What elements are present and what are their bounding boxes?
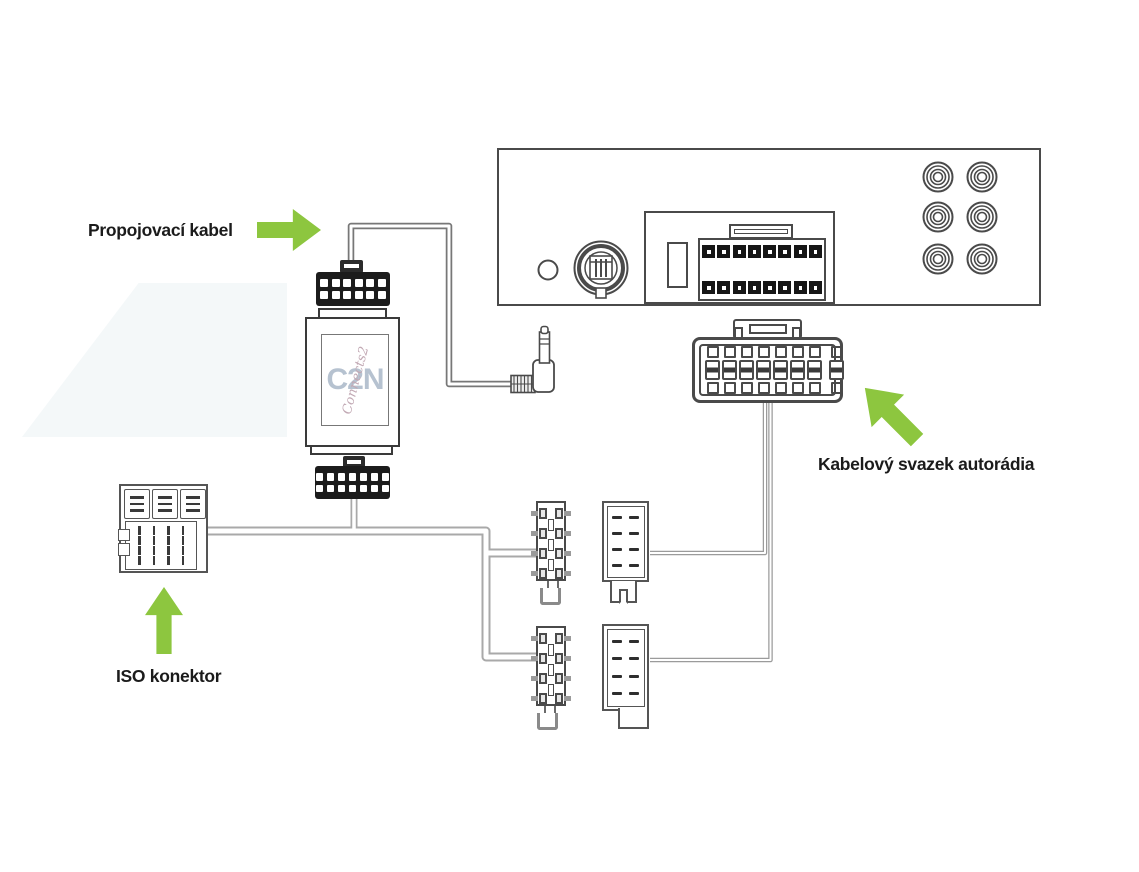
iso-key-block	[152, 489, 178, 519]
socket-slot	[612, 516, 622, 519]
socket-slot	[130, 509, 144, 512]
socket-slot	[186, 509, 200, 512]
pin	[733, 281, 746, 294]
arrow-up-icon	[145, 587, 183, 654]
radio-pin-row	[702, 245, 822, 258]
socket-slot	[612, 657, 622, 660]
radio-pin-block	[698, 238, 826, 301]
pin	[794, 245, 807, 258]
arrow-right-icon	[257, 209, 321, 251]
arrow-up-left-icon	[849, 372, 934, 457]
terminal-row	[538, 633, 564, 644]
pin	[717, 281, 730, 294]
pin	[343, 291, 351, 299]
iso-key-notch	[118, 543, 130, 556]
socket-slot	[186, 503, 200, 506]
pin	[360, 473, 368, 481]
pin	[809, 281, 822, 294]
pin	[349, 485, 357, 493]
mid-slots	[538, 519, 564, 571]
jack-body	[533, 360, 554, 392]
key-slot	[548, 644, 554, 656]
socket-slot	[186, 496, 200, 499]
pin	[138, 526, 141, 535]
male-connector-lower	[536, 626, 566, 706]
pin	[778, 245, 791, 258]
harness-terminal-column	[740, 346, 753, 394]
pin	[153, 536, 156, 545]
socket-slot	[612, 548, 622, 551]
female-connector-lower	[602, 624, 649, 711]
pin	[153, 556, 156, 565]
adapter-top-connector	[316, 272, 390, 306]
radio-key-slot	[667, 242, 688, 288]
terminal-bar	[564, 656, 571, 661]
pin	[355, 291, 363, 299]
terminal-bar	[564, 531, 571, 536]
pin	[182, 546, 185, 555]
terminal-bar	[564, 511, 571, 516]
pin	[763, 245, 776, 258]
harness-terminal-column	[830, 346, 843, 394]
terminal-contact	[790, 360, 805, 380]
socket-slot	[612, 532, 622, 535]
harness-terminal-column	[723, 346, 736, 394]
socket-slot	[158, 509, 172, 512]
pin	[748, 245, 761, 258]
socket-slot	[130, 503, 144, 506]
iso-connector	[119, 484, 208, 573]
pin	[382, 485, 390, 493]
terminal-contact	[758, 382, 770, 394]
terminal	[555, 633, 563, 644]
socket-slot	[629, 675, 639, 678]
socket-slot	[629, 657, 639, 660]
terminal-contact	[792, 346, 804, 358]
terminal	[555, 508, 563, 519]
pin-row	[316, 291, 390, 299]
socket-slot	[612, 564, 622, 567]
socket-slot	[130, 496, 144, 499]
terminal-bar	[531, 696, 538, 701]
pin	[338, 485, 346, 493]
male-connector-upper	[536, 501, 566, 581]
pin	[182, 556, 185, 565]
pin	[138, 556, 141, 565]
pin	[153, 546, 156, 555]
terminal	[539, 633, 547, 644]
key-slot	[548, 539, 554, 551]
label-radio-harness: Kabelový svazek autorádia	[818, 454, 1034, 475]
terminal-row	[538, 508, 564, 519]
pin	[332, 279, 340, 287]
terminal-contact	[707, 382, 719, 394]
socket-slot	[629, 532, 639, 535]
terminal-contact	[809, 382, 821, 394]
male-upper-tab	[540, 588, 561, 605]
iso-key-blocks	[124, 489, 206, 519]
pin	[343, 279, 351, 287]
harness-latch-tab-inner	[749, 324, 787, 334]
pin	[748, 281, 761, 294]
pin	[320, 291, 328, 299]
radio-pin-row	[702, 281, 822, 294]
terminal-bar	[564, 571, 571, 576]
terminal-bar	[531, 571, 538, 576]
pin	[702, 281, 715, 294]
terminal-bar	[564, 636, 571, 641]
pin	[182, 526, 185, 535]
iso-pin-grid	[132, 525, 190, 566]
male-lower-tab	[537, 713, 558, 730]
pin-row	[315, 485, 390, 493]
socket-slot	[629, 564, 639, 567]
socket-slot	[629, 548, 639, 551]
terminal-contact	[809, 346, 821, 358]
terminal-bar	[531, 551, 538, 556]
jack-plug	[511, 327, 554, 393]
jack-tip	[541, 327, 548, 334]
pin	[332, 291, 340, 299]
female-upper-tab	[610, 581, 637, 603]
terminal-bar	[564, 696, 571, 701]
pin	[153, 526, 156, 535]
key-slot	[548, 664, 554, 676]
terminal-bar	[564, 551, 571, 556]
background-watermark	[22, 283, 287, 437]
pin	[355, 279, 363, 287]
socket-slot	[612, 640, 622, 643]
wiring-diagram: C2N Connects2	[0, 0, 1139, 872]
pin	[182, 536, 185, 545]
pin	[167, 526, 170, 535]
pin	[702, 245, 715, 258]
adapter-box: C2N Connects2	[305, 317, 400, 447]
label-iso-connector: ISO konektor	[116, 666, 221, 687]
pin	[794, 281, 807, 294]
socket-slot	[158, 503, 172, 506]
mid-slots	[538, 644, 564, 696]
pin	[378, 279, 386, 287]
terminal-contact	[722, 360, 737, 380]
terminal-contact	[724, 346, 736, 358]
female-connector-upper	[602, 501, 649, 582]
socket-slot	[629, 692, 639, 695]
socket-slot	[612, 692, 622, 695]
terminal-contact	[773, 360, 788, 380]
pin	[138, 546, 141, 555]
terminal-bar	[531, 531, 538, 536]
harness-terminal-column	[757, 346, 770, 394]
terminal-contact	[792, 382, 804, 394]
terminal-contact	[724, 382, 736, 394]
adapter-logo-frame: C2N Connects2	[321, 334, 389, 426]
iso-pin-box	[125, 521, 197, 570]
pin	[167, 536, 170, 545]
terminal-contact	[758, 346, 770, 358]
pin	[733, 245, 746, 258]
harness-connector	[692, 337, 843, 403]
iso-key-block	[124, 489, 150, 519]
pin	[371, 485, 379, 493]
terminal-contact	[739, 360, 754, 380]
pin	[366, 279, 374, 287]
pin	[717, 245, 730, 258]
iso-key-notch	[118, 529, 130, 541]
socket-slot	[612, 675, 622, 678]
pin	[338, 473, 346, 481]
terminal-contact	[829, 360, 844, 380]
adapter-bottom-connector	[315, 466, 390, 499]
pin	[327, 485, 335, 493]
terminal-contact	[741, 382, 753, 394]
terminal-bar	[564, 676, 571, 681]
socket-grid	[609, 510, 642, 573]
terminal-bar	[531, 676, 538, 681]
jack-shaft	[540, 332, 550, 363]
pin	[349, 473, 357, 481]
socket-slot	[629, 516, 639, 519]
harness-terminal-column	[706, 346, 719, 394]
terminal-contact	[807, 360, 822, 380]
pin-row	[315, 473, 390, 481]
harness-terminal-area	[699, 344, 836, 396]
pin	[778, 281, 791, 294]
terminal-contact	[741, 346, 753, 358]
terminal-bar	[531, 656, 538, 661]
pin	[382, 473, 390, 481]
pin	[809, 245, 822, 258]
pin	[763, 281, 776, 294]
socket-slot	[158, 496, 172, 499]
harness-terminal-column	[774, 346, 787, 394]
female-upper-tab-cutout	[619, 589, 628, 604]
socket-grid	[609, 633, 642, 702]
pin	[316, 485, 324, 493]
terminal-contact	[705, 360, 720, 380]
key-slot	[548, 519, 554, 531]
terminal-contact	[775, 346, 787, 358]
radio-top-slot	[729, 224, 793, 239]
pin	[138, 536, 141, 545]
female-lower-foot	[618, 708, 649, 729]
socket-slot	[629, 640, 639, 643]
pin	[327, 473, 335, 481]
terminal-contact	[756, 360, 771, 380]
pin-row	[316, 279, 390, 287]
terminal-bar	[531, 636, 538, 641]
pin	[167, 546, 170, 555]
pin	[316, 473, 324, 481]
key-slot	[548, 559, 554, 571]
key-slot	[548, 684, 554, 696]
radio-top-slot-inner	[734, 229, 788, 234]
pin	[320, 279, 328, 287]
terminal-contact	[775, 382, 787, 394]
terminal-contact	[831, 346, 843, 358]
harness-terminal-column	[791, 346, 804, 394]
pin	[360, 485, 368, 493]
jack-strain-relief	[511, 376, 535, 393]
terminal	[539, 508, 547, 519]
harness-terminal-column	[808, 346, 821, 394]
terminal-contact	[707, 346, 719, 358]
terminal-bar	[531, 511, 538, 516]
pin	[371, 473, 379, 481]
pin	[378, 291, 386, 299]
terminal-contact	[831, 382, 843, 394]
pin	[167, 556, 170, 565]
pin	[366, 291, 374, 299]
label-connecting-cable: Propojovací kabel	[88, 220, 233, 241]
iso-key-block	[180, 489, 206, 519]
